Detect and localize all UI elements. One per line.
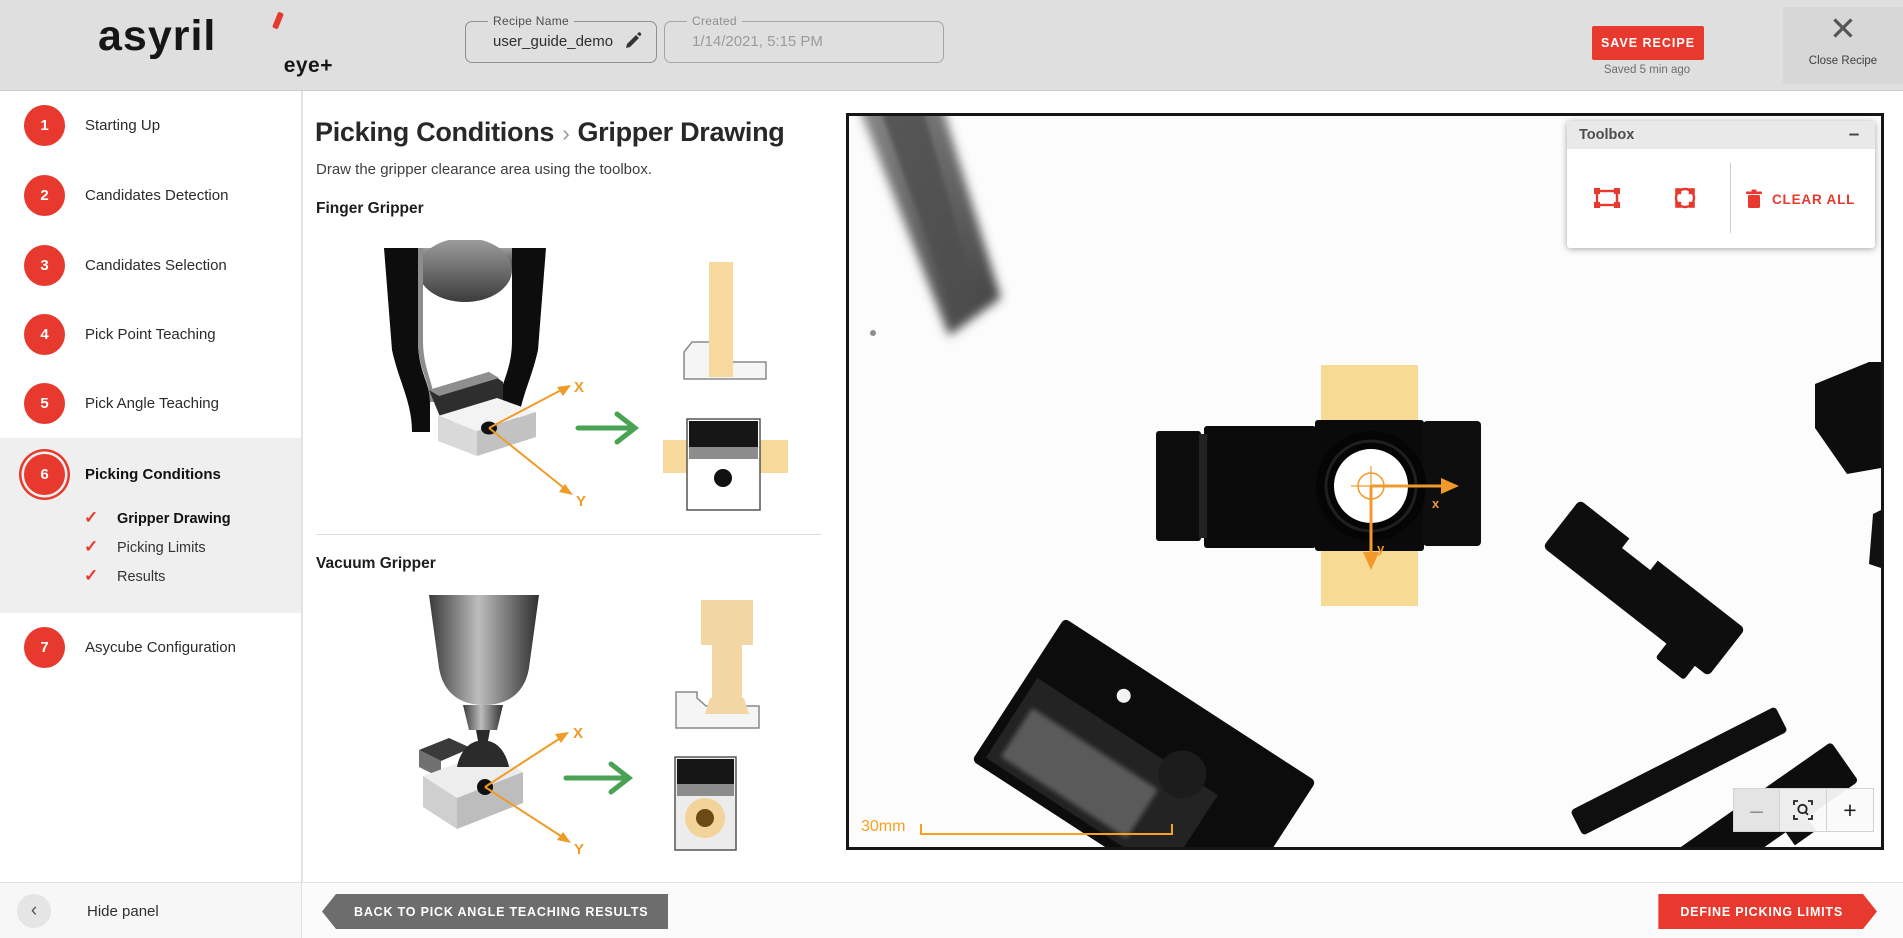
brand-accent-slash-icon bbox=[272, 11, 284, 29]
camera-viewer-canvas[interactable]: x y bbox=[846, 113, 1884, 850]
scale-label: 30mm bbox=[861, 818, 905, 836]
step-number-badge: 3 bbox=[24, 245, 65, 286]
toolbox-body: CLEAR ALL bbox=[1567, 149, 1875, 248]
steps-sidebar: 1 Starting Up 2 Candidates Detection 3 C… bbox=[0, 91, 302, 882]
sidebar-item-candidates-detection[interactable]: 2 Candidates Detection bbox=[0, 175, 301, 216]
breadcrumb: Picking Conditions›Gripper Drawing bbox=[315, 117, 785, 148]
hide-panel-label: Hide panel bbox=[87, 903, 159, 920]
breadcrumb-separator: › bbox=[554, 120, 577, 146]
sidebar-subitem-gripper-drawing[interactable]: ✓ Gripper Drawing bbox=[0, 507, 301, 531]
zoom-fit-icon bbox=[1792, 799, 1814, 821]
toolbox-header: Toolbox – bbox=[1567, 121, 1875, 149]
trash-icon bbox=[1745, 189, 1763, 209]
zoom-fit-button[interactable] bbox=[1780, 788, 1827, 832]
top-bar: asyril eye+ Recipe Name user_guide_demo … bbox=[0, 0, 1903, 91]
scale-bar bbox=[920, 824, 1173, 835]
brand-name-text: asyril bbox=[98, 12, 216, 60]
sidebar-item-candidates-selection[interactable]: 3 Candidates Selection bbox=[0, 245, 301, 286]
sidebar-item-label: Candidates Selection bbox=[85, 245, 227, 286]
toolbox-divider bbox=[1730, 163, 1731, 233]
sidebar-item-label: Pick Angle Teaching bbox=[85, 383, 219, 424]
arrow-right-icon bbox=[578, 414, 635, 442]
footer-sidebar: ‹ Hide panel bbox=[0, 883, 302, 938]
step-number-badge: 1 bbox=[24, 105, 65, 146]
eye-plus-app: asyril eye+ Recipe Name user_guide_demo … bbox=[0, 0, 1903, 938]
clear-all-button[interactable]: CLEAR ALL bbox=[1745, 181, 1855, 217]
pencil-icon bbox=[623, 31, 643, 51]
footer-bar: ‹ Hide panel BACK TO PICK ANGLE TEACHING… bbox=[0, 882, 1903, 938]
step-number-badge: 4 bbox=[24, 314, 65, 355]
step-number-badge: 5 bbox=[24, 383, 65, 424]
sidebar-subitem-results[interactable]: ✓ Results bbox=[0, 565, 301, 589]
save-recipe-button[interactable]: SAVE RECIPE bbox=[1592, 26, 1704, 60]
check-icon: ✓ bbox=[84, 537, 98, 557]
arrow-right-icon bbox=[566, 764, 629, 792]
page-title: Gripper Drawing bbox=[577, 117, 784, 147]
sidebar-item-starting-up[interactable]: 1 Starting Up bbox=[0, 105, 301, 146]
toolbox-title: Toolbox bbox=[1579, 121, 1634, 149]
axis-x-label: X bbox=[574, 379, 584, 396]
vacuum-gripper-label: Vacuum Gripper bbox=[316, 555, 436, 573]
recipe-name-value[interactable]: user_guide_demo bbox=[493, 33, 613, 50]
section-divider bbox=[316, 534, 821, 535]
saved-status: Saved 5 min ago bbox=[1577, 64, 1717, 76]
main-panel: Picking Conditions›Gripper Drawing Draw … bbox=[302, 91, 1903, 882]
instruction-text: Draw the gripper clearance area using th… bbox=[316, 161, 652, 178]
recipe-name-label: Recipe Name bbox=[488, 14, 574, 28]
finger-gripper-illustration: X Y bbox=[371, 240, 841, 515]
sidebar-item-label: Pick Point Teaching bbox=[85, 314, 216, 355]
step-number-badge: 7 bbox=[24, 627, 65, 668]
define-picking-limits-button[interactable]: DEFINE PICKING LIMITS bbox=[1658, 894, 1877, 929]
sidebar-subitem-picking-limits[interactable]: ✓ Picking Limits bbox=[0, 536, 301, 560]
zoom-in-button[interactable]: + bbox=[1827, 788, 1874, 832]
recipe-name-field[interactable]: Recipe Name user_guide_demo bbox=[465, 21, 657, 63]
zoom-controls: – + bbox=[1733, 788, 1874, 832]
back-to-pick-angle-teaching-button[interactable]: BACK TO PICK ANGLE TEACHING RESULTS bbox=[322, 894, 668, 929]
axis-y-label: Y bbox=[576, 493, 586, 510]
circle-tool-button[interactable] bbox=[1667, 181, 1703, 217]
clear-all-label: CLEAR ALL bbox=[1772, 192, 1855, 207]
step-number-badge: 6 bbox=[24, 454, 65, 495]
axis-y-label: Y bbox=[574, 841, 584, 858]
viewer-axis-y-label: y bbox=[1377, 541, 1385, 556]
edit-recipe-name-button[interactable] bbox=[622, 31, 644, 53]
rectangle-tool-icon bbox=[1591, 182, 1623, 214]
sidebar-subitem-label: Picking Limits bbox=[117, 536, 206, 560]
sidebar-item-label: Starting Up bbox=[85, 105, 160, 146]
close-icon: ✕ bbox=[1783, 7, 1903, 51]
created-label: Created bbox=[687, 14, 742, 28]
vacuum-gripper-illustration: X Y bbox=[401, 580, 801, 870]
axis-x-label: X bbox=[573, 725, 583, 742]
sidebar-item-asycube-configuration[interactable]: 7 Asycube Configuration bbox=[0, 627, 301, 668]
created-field: Created 1/14/2021, 5:15 PM bbox=[664, 21, 944, 63]
close-recipe-button[interactable]: ✕ Close Recipe bbox=[1783, 7, 1903, 84]
sidebar-item-label: Candidates Detection bbox=[85, 175, 228, 216]
sidebar-item-pick-point-teaching[interactable]: 4 Pick Point Teaching bbox=[0, 314, 301, 355]
created-value: 1/14/2021, 5:15 PM bbox=[692, 33, 823, 50]
breadcrumb-section: Picking Conditions bbox=[315, 117, 554, 147]
toolbox-panel: Toolbox – bbox=[1567, 121, 1875, 248]
step-number-badge: 2 bbox=[24, 175, 65, 216]
finger-gripper-label: Finger Gripper bbox=[316, 200, 424, 218]
hide-panel-button[interactable]: ‹ bbox=[17, 894, 51, 928]
check-icon: ✓ bbox=[84, 508, 98, 528]
sidebar-item-label: Picking Conditions bbox=[85, 454, 221, 495]
brand-logo: asyril eye+ bbox=[98, 16, 333, 76]
zoom-out-button[interactable]: – bbox=[1733, 788, 1780, 832]
rectangle-tool-button[interactable] bbox=[1589, 181, 1625, 217]
sidebar-item-pick-angle-teaching[interactable]: 5 Pick Angle Teaching bbox=[0, 383, 301, 424]
sidebar-item-picking-conditions[interactable]: 6 Picking Conditions bbox=[0, 454, 301, 495]
brand-name: asyril bbox=[98, 16, 333, 56]
sidebar-item-label: Asycube Configuration bbox=[85, 627, 236, 668]
circle-tool-icon bbox=[1669, 182, 1701, 214]
close-recipe-label: Close Recipe bbox=[1809, 55, 1877, 67]
toolbox-minimize-button[interactable]: – bbox=[1841, 121, 1867, 149]
viewer-axis-x-label: x bbox=[1432, 496, 1440, 511]
sidebar-subitem-label: Gripper Drawing bbox=[117, 507, 231, 531]
check-icon: ✓ bbox=[84, 566, 98, 586]
sidebar-subitem-label: Results bbox=[117, 565, 165, 589]
